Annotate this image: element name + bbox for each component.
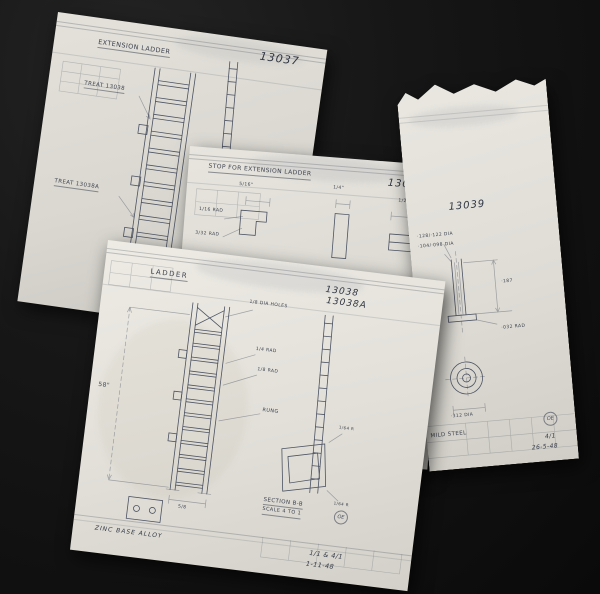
- faded-row: [359, 407, 399, 416]
- material-note: MILD STEEL: [430, 430, 467, 439]
- dim-dia-a: ·128/·122 DIA: [417, 232, 453, 240]
- header-rule: [106, 252, 444, 294]
- header-rule: [399, 105, 549, 119]
- dim-187: ·187: [501, 279, 513, 285]
- stop-bracket-drawing: [166, 146, 451, 470]
- inspection-stamp: OE: [543, 411, 558, 426]
- pasted-info-card: OE SCALE 4/1 DATE 27-5-48: [350, 383, 424, 455]
- dim-rad-14: 1/4 RAD: [255, 347, 276, 355]
- dim-dia-b: ·104/·098 DIA: [418, 242, 454, 250]
- date-label: DATE: [357, 421, 370, 427]
- faded-row: [361, 389, 399, 397]
- dim-5-16: 5/16": [239, 182, 254, 188]
- dim-rad-18: 1/8 RAD: [319, 389, 340, 396]
- footer-rule: [74, 514, 412, 556]
- inspection-stamp: OE: [333, 510, 349, 526]
- photo-of-drawings: EXTENSION LADDER 13037 TREAT 13038 TREAT…: [0, 0, 600, 594]
- scale-note: 4/1: [545, 433, 556, 441]
- callout-treat-13038: TREAT 13038: [84, 80, 126, 94]
- date-note: 26-5-48: [532, 443, 559, 452]
- sheet-13037-shadow-wrap: EXTENSION LADDER 13037 TREAT 13038 TREAT…: [0, 0, 600, 594]
- sheet-extension-ladder-13037: EXTENSION LADDER 13037 TREAT 13038 TREAT…: [17, 12, 327, 339]
- ghost-impression: [173, 31, 305, 71]
- header-rule: [56, 25, 325, 64]
- drawing-number: 13037: [259, 51, 300, 69]
- drawing-number: 13040: [387, 178, 425, 192]
- ghost-impression: [408, 101, 519, 131]
- dim-width-58: 5/8: [178, 505, 187, 511]
- header-rule: [52, 52, 321, 91]
- scale-value: 4/1: [377, 415, 386, 422]
- section-a-a-label: SECTION A-A: [267, 405, 307, 416]
- sheet-stop-for-extension-ladder-13040: STOP FOR EXTENSION LADDER 13040: [166, 146, 451, 470]
- dim-032-rad: ·032 RAD: [501, 324, 525, 331]
- section-scale-label: SCALE 4 TO 1: [267, 415, 306, 426]
- date-note: 1-11-48: [306, 561, 335, 572]
- dim-3-8: 3/8": [425, 239, 436, 245]
- paper-stain: [87, 311, 258, 508]
- header-rule: [103, 284, 441, 326]
- dim-312-dia: ·312 DIA: [451, 413, 474, 420]
- ghost-impression: [248, 151, 409, 187]
- sheet-13039-shadow-wrap: 13039 ·128/·122 DIA ·104/·098 DIA ·187 ·…: [0, 0, 600, 594]
- dim-holes: 1/8 DIA HOLES: [249, 300, 288, 310]
- dim-1-2: 1/2": [398, 199, 409, 205]
- header-rule: [187, 182, 448, 204]
- dim-length-58: 58": [98, 382, 110, 390]
- dim-rad-116: 1/16 RAD: [199, 207, 224, 214]
- drawing-number-top: 13038: [325, 285, 360, 299]
- header-rule: [189, 158, 450, 180]
- sheet-13040-shadow-wrap: STOP FOR EXTENSION LADDER 13040: [0, 0, 600, 594]
- callout-treat-13038a: TREAT 13038A: [54, 178, 100, 193]
- header-rule: [189, 154, 450, 176]
- date-value: 27-5-48: [373, 423, 395, 433]
- dim-rad-164-top: 1/64 R: [339, 426, 355, 432]
- scale-note: 1/1 & 4/1: [309, 550, 343, 562]
- sheet-ladder-13038: LADDER 13038 13038A: [70, 240, 445, 591]
- sheet-title: STOP FOR EXTENSION LADDER: [208, 164, 312, 181]
- dim-307: ·307: [314, 296, 326, 302]
- section-b-b-label: SECTION B-B: [263, 497, 303, 510]
- ghost-impression: [194, 253, 366, 300]
- sheet-13038-shadow-wrap: LADDER 13038 13038A: [0, 0, 600, 594]
- section-scale-label: SCALE 4 TO 1: [262, 507, 302, 519]
- footer-rule: [74, 519, 412, 561]
- callout-rung: RUNG: [262, 408, 279, 416]
- dim-309: ·309: [284, 292, 296, 298]
- header-rule: [57, 21, 326, 60]
- sheet-title: LADDER: [150, 267, 189, 282]
- dim-rad-164-bottom: 1/64 R: [333, 501, 349, 507]
- dim-rad-175: ·175 RAD: [340, 324, 364, 331]
- drawing-number: 13039: [448, 199, 486, 214]
- inspection-stamp: OE: [405, 390, 420, 405]
- extension-ladder-drawing: [17, 12, 327, 339]
- drawing-number-bottom: 13038A: [326, 296, 368, 311]
- faded-row: [360, 395, 402, 404]
- header-rule: [399, 110, 549, 124]
- faded-row: [360, 401, 396, 409]
- ladder-drawing: [70, 240, 445, 591]
- dim-1-4: 1/4": [333, 185, 344, 191]
- dim-rad-332: 3/32 RAD: [195, 231, 220, 238]
- dim-rad-18: 1/8 RAD: [257, 367, 278, 375]
- sheet-title: EXTENSION LADDER: [97, 39, 170, 58]
- sheet-pin-detail-13039: 13039 ·128/·122 DIA ·104/·098 DIA ·187 ·…: [396, 75, 579, 472]
- pin-drawing: [396, 75, 579, 472]
- material-note: ZINC BASE ALLOY: [94, 526, 163, 541]
- scale-label: SCALE: [358, 413, 374, 420]
- dim-rad-15: 15 RAD: [267, 383, 286, 390]
- header-rule: [107, 248, 445, 290]
